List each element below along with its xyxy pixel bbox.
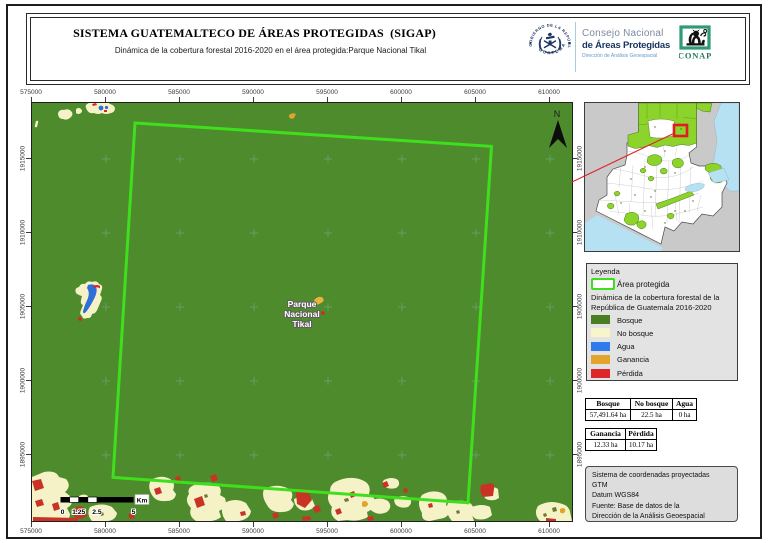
- svg-text:Parque: Parque: [288, 299, 317, 309]
- svg-text:5: 5: [132, 509, 136, 516]
- svg-text:N: N: [554, 109, 561, 119]
- svg-text:0: 0: [61, 509, 65, 516]
- svg-text:CONAP: CONAP: [679, 51, 712, 61]
- svg-text:2.5: 2.5: [92, 509, 102, 516]
- svg-text:Nacional: Nacional: [284, 309, 319, 319]
- svg-text:Km: Km: [137, 498, 148, 505]
- svg-text:Tikal: Tikal: [292, 319, 311, 329]
- svg-text:1.25: 1.25: [72, 509, 85, 516]
